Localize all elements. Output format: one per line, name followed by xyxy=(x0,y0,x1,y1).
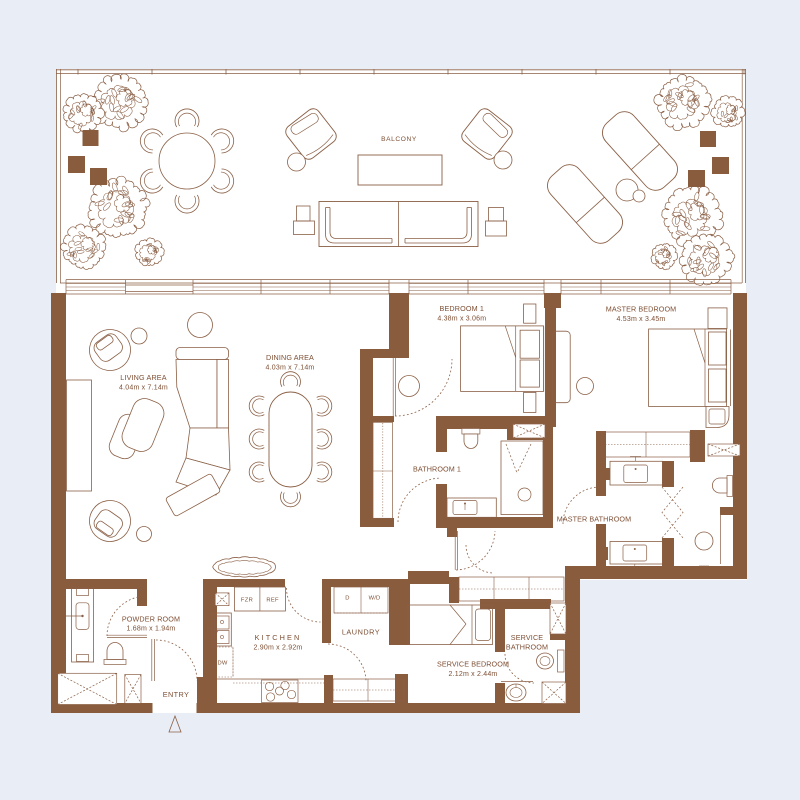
svg-text:BALCONY: BALCONY xyxy=(381,136,417,143)
svg-text:ENTRY: ENTRY xyxy=(163,690,190,699)
svg-text:4.38m x 3.06m: 4.38m x 3.06m xyxy=(437,316,486,323)
svg-text:SERVICE: SERVICE xyxy=(511,633,544,642)
svg-text:W/D: W/D xyxy=(369,596,381,602)
svg-text:4.03m x 7.14m: 4.03m x 7.14m xyxy=(266,365,315,372)
svg-text:BATHROOM: BATHROOM xyxy=(506,643,548,652)
svg-text:2.90m x 2.92m: 2.90m x 2.92m xyxy=(254,645,303,652)
svg-text:LIVING AREA: LIVING AREA xyxy=(120,373,166,382)
svg-text:1.68m x 1.94m: 1.68m x 1.94m xyxy=(127,626,176,633)
svg-text:LAUNDRY: LAUNDRY xyxy=(342,628,380,637)
svg-text:DINING AREA: DINING AREA xyxy=(266,353,314,362)
svg-text:REF: REF xyxy=(266,598,279,604)
svg-text:POWDER ROOM: POWDER ROOM xyxy=(122,615,180,624)
svg-text:4.53m x 3.45m: 4.53m x 3.45m xyxy=(617,316,666,323)
svg-text:SERVICE BEDROOM: SERVICE BEDROOM xyxy=(437,660,509,669)
svg-text:MASTER BEDROOM: MASTER BEDROOM xyxy=(606,305,677,314)
svg-text:4.04m x 7.14m: 4.04m x 7.14m xyxy=(119,385,168,392)
svg-text:FZR: FZR xyxy=(241,598,253,604)
svg-text:KITCHEN: KITCHEN xyxy=(255,633,302,642)
svg-text:D: D xyxy=(345,596,349,602)
svg-text:MASTER BATHROOM: MASTER BATHROOM xyxy=(557,515,631,524)
svg-text:DW: DW xyxy=(217,661,227,667)
svg-text:2.12m x 2.44m: 2.12m x 2.44m xyxy=(449,671,498,678)
svg-text:BEDROOM 1: BEDROOM 1 xyxy=(440,304,484,313)
svg-text:BATHROOM 1: BATHROOM 1 xyxy=(413,465,461,474)
